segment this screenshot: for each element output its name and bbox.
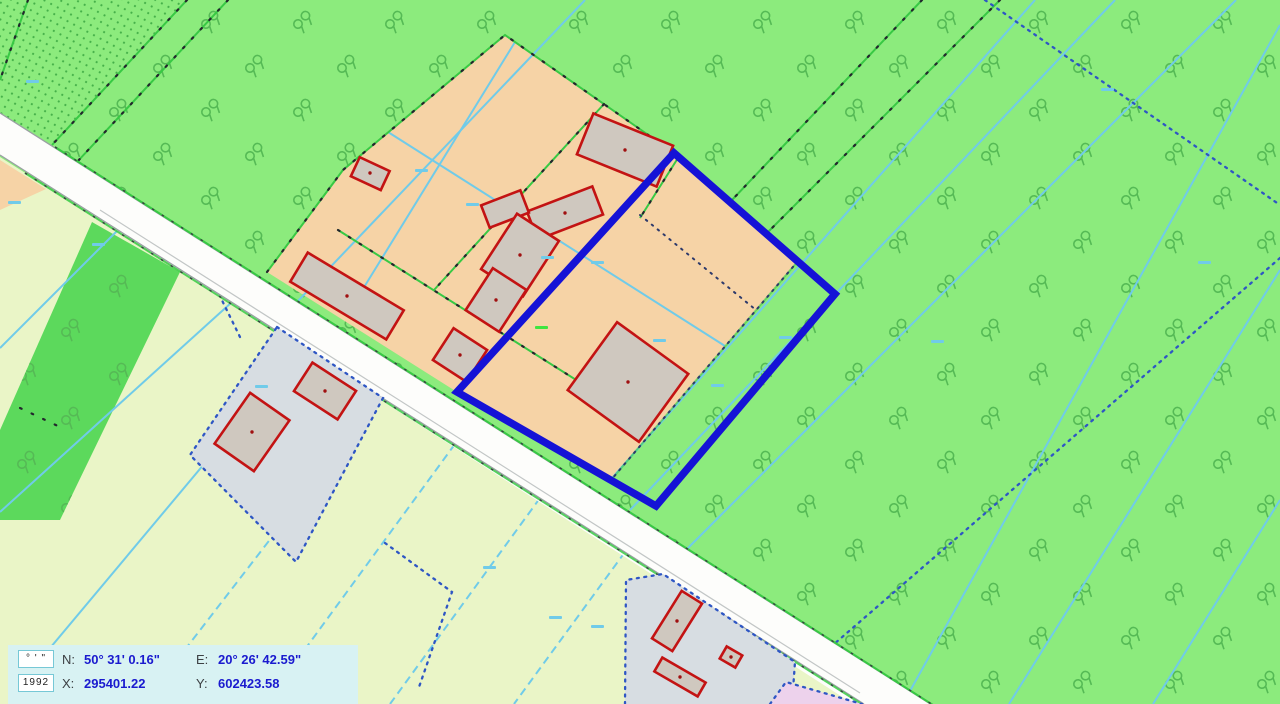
- map-viewport[interactable]: ° ' " N: 50° 31' 0.16" E: 20° 26' 42.59"…: [0, 0, 1280, 704]
- y-value: 602423.58: [218, 676, 330, 691]
- degrees-unit-box[interactable]: ° ' ": [18, 650, 54, 668]
- longitude-value: 20° 26' 42.59": [218, 652, 330, 667]
- projected-coords-row: 1992 X: 295401.22 Y: 602423.58: [18, 673, 330, 693]
- geographic-coords-row: ° ' " N: 50° 31' 0.16" E: 20° 26' 42.59": [18, 649, 330, 669]
- y-label: Y:: [196, 676, 218, 691]
- latitude-value: 50° 31' 0.16": [84, 652, 196, 667]
- crs-1992-box[interactable]: 1992: [18, 674, 54, 692]
- longitude-label: E:: [196, 652, 218, 667]
- latitude-label: N:: [62, 652, 84, 667]
- x-value: 295401.22: [84, 676, 196, 691]
- coordinate-panel: ° ' " N: 50° 31' 0.16" E: 20° 26' 42.59"…: [8, 645, 358, 704]
- map-canvas[interactable]: [0, 0, 1280, 704]
- x-label: X:: [62, 676, 84, 691]
